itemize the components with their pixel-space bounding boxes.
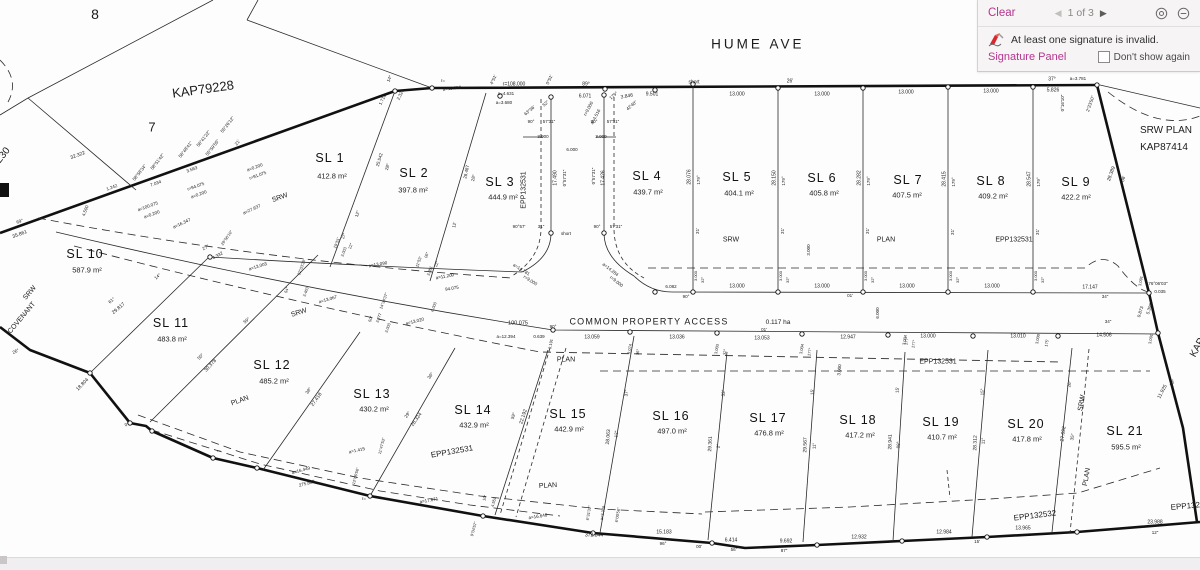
plan-label: 12° — [614, 430, 619, 437]
plan-label: HUME — [711, 37, 763, 51]
plan-label: 29.361 — [708, 436, 714, 452]
plan-label: 90°57' — [513, 225, 526, 230]
signature-actions-row: Signature Panel Don't show again — [978, 49, 1200, 65]
plan-label: 13.000 — [984, 285, 999, 290]
plan-label: 17.490 — [554, 170, 559, 185]
plan-label: 00' — [696, 545, 702, 550]
lot-label: SL 2 — [399, 166, 428, 180]
plan-label: 56° — [731, 548, 738, 553]
plan-label: 179° — [952, 177, 957, 186]
plan-label: 90° — [550, 325, 557, 330]
previous-page-icon[interactable]: ◀ — [1055, 9, 1062, 18]
plan-label: a=3.680 — [496, 101, 512, 106]
lot-label: SL 14 — [454, 403, 491, 417]
plan-label: 17.426 — [602, 170, 607, 185]
lot-area: 412.8 m² — [317, 172, 347, 181]
plan-label: 90° — [591, 120, 598, 125]
lot-label: SL 20 — [1007, 417, 1044, 431]
target-icon[interactable] — [1155, 7, 1168, 20]
lot-area: 410.7 m² — [927, 433, 957, 442]
lot-label: SL 3 — [485, 175, 514, 189]
plan-label: 100.075 — [508, 321, 528, 327]
plan-label: 11° — [982, 438, 987, 445]
plan-label: 31' — [781, 228, 786, 234]
lot-label: SL 19 — [922, 415, 959, 429]
plan-label: r= — [441, 79, 445, 84]
plan-label: 13.000 — [814, 93, 829, 98]
pdf-page: SL 1412.8 m²SL 2397.8 m²SL 3444.9 m²SL 4… — [0, 0, 1200, 570]
lot-area: 430.2 m² — [359, 405, 389, 414]
plan-label: 32° — [956, 277, 960, 283]
lot-area: 444.9 m² — [488, 193, 518, 202]
plan-label: 6.082 — [665, 285, 676, 290]
plan-label: 15° — [981, 389, 986, 396]
plan-label: 28.150 — [773, 170, 778, 185]
lot-label: SL 18 — [839, 413, 876, 427]
plan-label: r= — [362, 497, 366, 502]
signature-message: At least one signature is invalid. — [1011, 34, 1159, 46]
plan-label: 90° — [594, 225, 601, 230]
plan-label: 12" — [1152, 531, 1159, 536]
plan-label: 13.000 — [729, 93, 744, 98]
plan-label: 0°57'31" — [592, 168, 597, 185]
signature-notification-panel: Clear ◀ 1 of 3 ▶ At least one si — [977, 0, 1200, 72]
plan-label: 37° — [624, 389, 629, 396]
plan-label: 14.506 — [1096, 334, 1111, 339]
plan-label: 31' — [696, 228, 701, 234]
plan-label: 15' — [811, 389, 816, 395]
plan-label: 3.000 — [864, 271, 868, 281]
plan-label: 28.941 — [888, 434, 894, 449]
plan-label: 87" — [781, 549, 788, 554]
plan-label: 15.183 — [656, 531, 671, 536]
plan-label: 89° — [582, 83, 590, 88]
plan-label: 37° — [1048, 78, 1056, 83]
lot-area: 483.8 m² — [157, 335, 187, 344]
plan-label: 179° — [1037, 177, 1042, 186]
plan-label: 6.000 — [876, 307, 881, 318]
plan-label: 29.567 — [803, 437, 809, 452]
lot-area: 587.9 m² — [72, 266, 102, 275]
lot-label: SL 9 — [1061, 175, 1090, 189]
dont-show-again-checkbox[interactable] — [1098, 51, 1110, 63]
signature-panel-button[interactable]: Signature Panel — [988, 51, 1066, 63]
plan-label: 35° — [1070, 433, 1075, 440]
lot-area: 476.8 m² — [754, 429, 784, 438]
plan-label: 34" — [1102, 295, 1109, 300]
scrollbar-nub[interactable] — [0, 556, 7, 564]
plan-label: 179° — [697, 175, 702, 184]
plan-label: 32° — [1041, 277, 1045, 283]
plan-label: 3.000 — [779, 271, 783, 281]
plan-label: short — [688, 81, 699, 86]
lot-area: 422.2 m² — [1061, 193, 1091, 202]
plan-label: 0°57'31" — [563, 170, 568, 187]
plan-label: EPP132531 — [995, 237, 1032, 244]
signature-toolbar: Clear ◀ 1 of 3 ▶ — [978, 0, 1200, 27]
plan-label: 13.965 — [1015, 527, 1030, 532]
lot-label: SL 1 — [315, 151, 344, 165]
plan-label: 90° — [528, 120, 535, 125]
lot-area: 485.2 m² — [259, 377, 289, 386]
plan-label: 34" — [1105, 320, 1112, 325]
lot-label: SL 21 — [1106, 424, 1143, 438]
plan-label: 13.010 — [1010, 335, 1025, 340]
plan-label: 57'31" — [610, 225, 622, 230]
page-indicator: 1 of 3 — [1068, 7, 1094, 19]
plan-label: 179° — [867, 176, 872, 185]
survey-plan-drawing: SL 1412.8 m²SL 2397.8 m²SL 3444.9 m²SL 4… — [0, 0, 1200, 570]
plan-label: 12.947 — [840, 336, 855, 341]
lot-area: 432.9 m² — [459, 421, 489, 430]
plan-label: 13.000 — [729, 285, 744, 290]
circle-minus-icon[interactable] — [1177, 7, 1190, 20]
plan-label: 11" — [813, 443, 818, 449]
next-page-icon[interactable]: ▶ — [1100, 9, 1107, 18]
lot-label: SL 8 — [976, 174, 1005, 188]
plan-label: 28.282 — [858, 170, 863, 185]
plan-label: 28.312 — [973, 435, 979, 450]
lot-label: SL 6 — [807, 171, 836, 185]
plan-label: 9.692 — [780, 540, 793, 545]
plan-label: PLAN — [539, 482, 558, 490]
plan-label: short — [561, 232, 571, 237]
plan-label: 13.000 — [983, 90, 998, 95]
lot-area: 595.5 m² — [1111, 443, 1141, 452]
lot-area: 407.5 m² — [892, 191, 922, 200]
plan-label: 12.932 — [851, 536, 866, 541]
plan-label: 5.826 — [1047, 89, 1060, 94]
plan-label: 57'31" — [607, 120, 619, 125]
plan-label: EPP132531 — [919, 359, 956, 366]
plan-label: 3.000 — [1034, 271, 1038, 281]
plan-label: 28.076 — [688, 169, 693, 184]
plan-label: 31' — [1036, 229, 1041, 235]
dont-show-again-label: Don't show again — [1114, 52, 1190, 63]
plan-label: 2° — [717, 444, 722, 449]
lot-area: 417.2 m² — [845, 431, 875, 440]
lot-label: SL 10 — [66, 247, 103, 261]
plan-label: 6.414 — [725, 539, 738, 544]
lot-area: 404.1 m² — [724, 189, 754, 198]
plan-label: 6.071 — [579, 95, 592, 100]
lot-area: 439.7 m² — [633, 188, 663, 197]
plan-label: 0°16'10" — [1061, 95, 1066, 112]
plan-label: 26' — [787, 80, 794, 85]
plan-label: 32° — [871, 277, 875, 283]
lot-label: SL 17 — [749, 411, 786, 425]
plan-label: SRW — [723, 237, 739, 244]
signature-message-row: At least one signature is invalid. — [978, 27, 1200, 49]
plan-label: 31" — [538, 225, 545, 230]
lot-area: 417.8 m² — [1012, 435, 1042, 444]
lot-area: 397.8 m² — [398, 186, 428, 195]
plan-label: 3.000 — [595, 135, 606, 140]
lot-label: SL 12 — [253, 358, 290, 372]
page-pager: ◀ 1 of 3 ▶ — [1015, 7, 1146, 19]
lot-label: SL 4 — [632, 169, 661, 183]
plan-label: 08° — [897, 442, 902, 449]
plan-label: 23.988 — [1147, 521, 1162, 526]
plan-label: 13.036 — [669, 336, 684, 341]
plan-label: AVE — [769, 37, 804, 51]
plan-label: 13.000 — [899, 285, 914, 290]
plan-label: 32° — [701, 277, 705, 283]
plan-label: 179° — [782, 176, 787, 185]
plan-label: 15' — [896, 387, 901, 393]
plan-label: 13.000 — [898, 91, 913, 96]
lot-area: 409.2 m² — [978, 192, 1008, 201]
plan-label: 8 — [91, 7, 99, 21]
plan-label: 3.000 — [537, 135, 548, 140]
lot-label: SL 7 — [893, 173, 922, 187]
plan-label: 01' — [761, 328, 767, 333]
plan-label: 3.000 — [807, 244, 812, 255]
lot-area: 405.8 m² — [809, 189, 839, 198]
plan-label: 57'31" — [543, 120, 555, 125]
plan-label: 7 — [148, 121, 155, 134]
plan-label: 31' — [951, 229, 956, 235]
plan-label: COMMON PROPERTY ACCESS — [569, 318, 728, 327]
plan-label: 28.547 — [1028, 171, 1033, 186]
plan-label: 0.117 ha — [766, 320, 791, 327]
plan-label: PLAN — [557, 357, 575, 364]
plan-label: a=12.394 — [497, 335, 516, 340]
plan-label: 3.000 — [949, 271, 953, 281]
plan-label: 13.000 — [920, 335, 935, 340]
plan-label: 9.501 — [646, 93, 659, 98]
dont-show-again: Don't show again — [1098, 51, 1190, 63]
plan-label: 90° — [683, 295, 690, 300]
plan-label: PLAN — [877, 237, 895, 244]
plan-label: SRW PLAN — [1140, 126, 1192, 136]
plan-label: 6.000 — [566, 148, 577, 153]
plan-label: 17.147 — [1082, 286, 1097, 291]
plan-label: 13.059 — [584, 336, 599, 341]
invalid-signature-icon — [988, 32, 1005, 47]
lot-area: 497.0 m² — [657, 427, 687, 436]
plan-label: 13.053 — [754, 337, 769, 342]
plan-label: 76°06'03" — [1148, 282, 1167, 287]
lot-label: SL 16 — [652, 409, 689, 423]
plan-label: 32° — [786, 277, 790, 283]
plan-label: 12.984 — [936, 531, 951, 536]
lot-label: SL 5 — [722, 170, 751, 184]
plan-label: 33° — [722, 389, 727, 396]
lot-area: 442.9 m² — [554, 425, 584, 434]
plan-label: r=108.000 — [503, 83, 526, 88]
lot-label: SL 13 — [353, 387, 390, 401]
plan-label: 28.415 — [943, 171, 948, 186]
plan-label: 372.844 — [585, 534, 603, 539]
plan-label: 0.639 — [533, 335, 544, 340]
plan-label: 13.000 — [814, 285, 829, 290]
plan-label: 0.035 — [1154, 290, 1165, 295]
lot-label: SL 11 — [153, 316, 189, 330]
plan-label: 96° — [660, 542, 667, 547]
plan-label: 3.000 — [694, 271, 698, 281]
plan-label: a=3.781 — [1070, 77, 1086, 82]
clear-button[interactable]: Clear — [988, 7, 1015, 19]
plan-label: 26° — [1067, 380, 1072, 387]
survey-vertices — [88, 82, 1160, 547]
plan-label: KAP87414 — [1140, 143, 1188, 153]
lot-label: SL 15 — [549, 407, 586, 421]
plan-label: EPP132531 — [521, 171, 528, 208]
plan-label: 31' — [866, 228, 871, 234]
plan-label: 15' — [974, 540, 980, 545]
plan-label: a=4.631 — [498, 92, 514, 97]
scrollbar-track[interactable] — [0, 557, 1200, 570]
plan-label: r= — [217, 449, 221, 453]
plan-label: 01' — [847, 294, 853, 299]
